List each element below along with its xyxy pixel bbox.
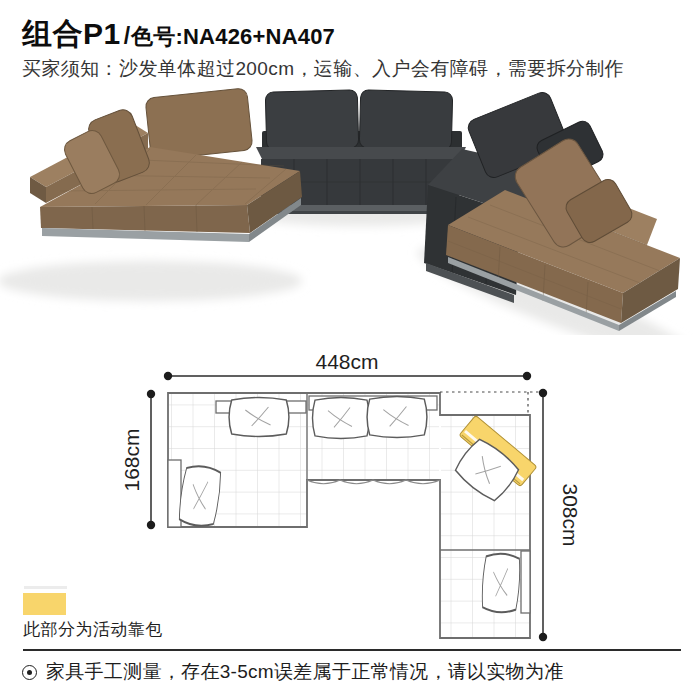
dimension-left-depth: 168cm — [120, 390, 155, 529]
plan-projection-dotted-lines — [440, 392, 541, 414]
title-divider: / — [124, 23, 130, 50]
product-photo — [0, 85, 700, 335]
legend-swatch-color — [23, 593, 66, 615]
plan-pillow — [229, 398, 289, 437]
dimension-right-depth: 308cm — [539, 389, 582, 641]
footer-note: 家具手工测量，存在3-5cm误差属于正常情况，请以实物为准 — [22, 659, 564, 685]
dimension-left-label: 168cm — [120, 428, 143, 491]
legend: 此部分为活动靠包 — [23, 586, 223, 641]
sofa-render — [0, 85, 700, 335]
dimension-width-label: 448cm — [315, 350, 378, 373]
buyer-notice: 买家须知：沙发单体超过200cm，运输、入户会有障碍，需要拆分制作 — [22, 56, 624, 82]
title-color-code: 色号:NA426+NA407 — [131, 22, 335, 52]
legend-topline — [24, 586, 67, 589]
divider-line — [23, 649, 681, 651]
sofa-left-section — [30, 88, 302, 242]
legend-label: 此部分为活动靠包 — [23, 618, 223, 641]
page: 组合P1 / 色号:NA426+NA407 买家须知：沙发单体超过200cm，运… — [0, 0, 700, 700]
page-title: 组合P1 / 色号:NA426+NA407 — [22, 14, 335, 55]
title-combination: 组合P1 — [22, 14, 121, 55]
plan-pillow — [481, 553, 521, 614]
bullseye-dot-inner — [27, 670, 32, 675]
dimension-right-label: 308cm — [559, 483, 582, 546]
plan-pillow — [313, 398, 370, 439]
footer-note-text: 家具手工测量，存在3-5cm误差属于正常情况，请以实物为准 — [46, 659, 564, 685]
bullseye-dot-icon — [22, 665, 37, 680]
plan-pillow — [367, 397, 427, 438]
dimension-width: 448cm — [164, 350, 531, 380]
legend-swatch — [23, 593, 66, 615]
